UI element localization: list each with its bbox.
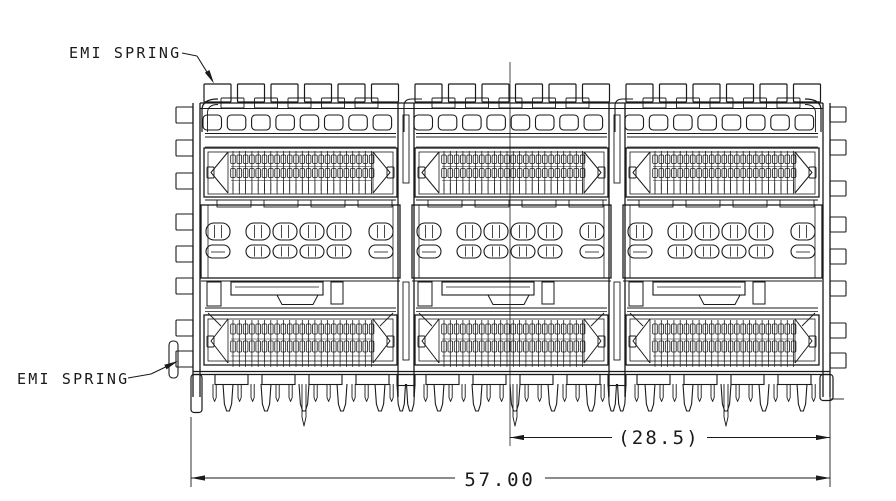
- emi-spring-label-bottom: EMI SPRING: [17, 370, 129, 388]
- emi-spring-label-top: EMI SPRING: [69, 44, 181, 62]
- dimension-overall-width-text: 57.00: [464, 469, 535, 491]
- dimension-half-width-text: (28.5): [618, 427, 700, 449]
- drawing-canvas: EMI SPRING EMI SPRING (28.5) 57.00: [0, 0, 896, 501]
- cage-outline-layer: [169, 84, 846, 426]
- engineering-drawing: EMI SPRING EMI SPRING (28.5) 57.00: [0, 0, 896, 501]
